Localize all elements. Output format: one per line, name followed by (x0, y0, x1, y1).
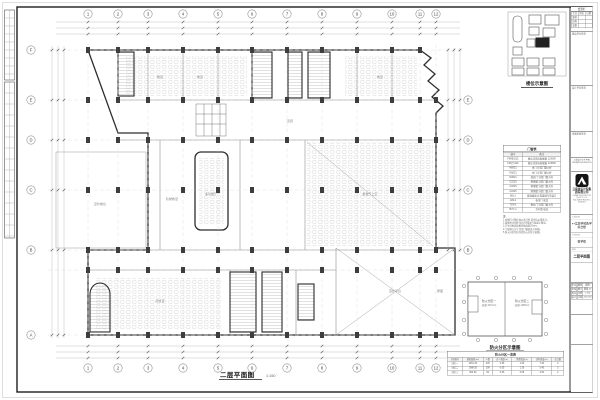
column (434, 187, 438, 193)
column (285, 47, 289, 53)
column (390, 47, 394, 53)
column (320, 247, 324, 253)
curved-stair (90, 283, 110, 332)
mini-axis-bubble (462, 332, 465, 335)
column (181, 332, 185, 338)
schedule-table: 编号备注 FM甲1021做法详见标准图集 12J609FM乙1221做法详见标准… (503, 152, 561, 213)
axis-bubble-label: C (29, 188, 32, 193)
column (390, 137, 394, 143)
column (181, 247, 185, 253)
axis-bubble-label: C (466, 188, 469, 193)
column (434, 267, 438, 273)
axis-bubble-label: 12 (434, 12, 439, 17)
axis-bubble-label: F (30, 48, 33, 53)
column (86, 137, 90, 143)
mini-axis-bubble (494, 338, 497, 341)
column (355, 267, 359, 273)
mini-axis-bubble (476, 338, 479, 341)
mini-axis-bubble (462, 284, 465, 287)
mini-axis-bubble (544, 284, 547, 287)
column (86, 332, 90, 338)
column (355, 187, 359, 193)
mini-axis-bubble (544, 318, 547, 321)
axis-bubble-label: D (466, 138, 469, 143)
mini-axis-bubble (528, 338, 531, 341)
empty-box-2 (571, 345, 593, 392)
column (116, 187, 120, 193)
column (434, 137, 438, 143)
column (216, 137, 220, 143)
column (355, 247, 359, 253)
column (86, 47, 90, 53)
mini-axis-bubble (528, 276, 531, 279)
column (146, 97, 150, 103)
fire-diagram-title: 防火分区示意图 (490, 344, 521, 351)
room-label: 教室 (377, 74, 383, 79)
schedule-title: 门窗表 (503, 145, 561, 152)
column (418, 137, 422, 143)
room-label: 室外看台 (94, 201, 106, 206)
column (250, 332, 254, 338)
project-name: ××实验学校教学综合楼 (571, 220, 593, 233)
mini-axis-bubble (462, 300, 465, 303)
column (116, 267, 120, 273)
axis-bubble-label: E (467, 98, 470, 103)
sign-off-table: 会签栏 专业姓名日期 建筑结构设备 (571, 7, 593, 32)
empty-box-1 (571, 315, 593, 345)
design-stamp-box: 设计单位签章 (571, 86, 593, 132)
column (116, 97, 120, 103)
column (390, 187, 394, 193)
room-label: 走廊 (287, 118, 293, 123)
column (285, 187, 289, 193)
owner-stamp-box: 建设单位签章 (571, 32, 593, 86)
mini-axis-bubble (476, 276, 479, 279)
column (146, 137, 150, 143)
column (320, 267, 324, 273)
axis-bubble-label: E (30, 98, 33, 103)
column (285, 247, 289, 253)
mini-axis-bubble (544, 300, 547, 303)
column (250, 97, 254, 103)
axis-bubble-label: A (30, 333, 33, 338)
column (181, 267, 185, 273)
column (146, 187, 150, 193)
revision-grid: 审定图别建施审核图号建施-05校对比例1:150设计日期2023.06 (571, 283, 593, 315)
column (86, 97, 90, 103)
column (285, 332, 289, 338)
review-stamp-box: 审图机构签章 (571, 132, 593, 158)
mini-axis-bubble (494, 276, 497, 279)
company-block: 云南省设计院集团有限公司 YUNNAN DESIGN INSTITUTE GRO… (571, 172, 593, 215)
column (86, 267, 90, 273)
fire-zone-2-label: 防火分区二 (515, 299, 529, 303)
column (86, 187, 90, 193)
mini-axis-bubble (512, 338, 515, 341)
classroom-desks-left (125, 56, 247, 96)
column (285, 267, 289, 273)
key-plan: 楼位示意图 (508, 12, 566, 88)
company-logo (575, 174, 588, 187)
column (355, 97, 359, 103)
hall-seats (199, 158, 224, 224)
column (434, 247, 438, 253)
general-notes: 注: 1.本图尺寸除标高以米计外,其余均以毫米计。2.墙体除注明外均为200厚加… (503, 215, 561, 234)
column (216, 247, 220, 253)
mini-axis-bubble (544, 332, 547, 335)
room-label: 教室 (197, 74, 203, 79)
project-fields: 工程名称 ××实验学校教学综合楼 子项名称 教学楼 图名 二层平面图 (571, 215, 593, 283)
table-row: 设计日期2023.06 (571, 295, 592, 299)
column (418, 332, 422, 338)
column (285, 137, 289, 143)
room-label: 屋面 (437, 288, 443, 293)
column (146, 47, 150, 53)
axis-bubble-label: 10 (390, 366, 395, 371)
room-label: 室外平台 (389, 288, 401, 293)
table-row: BYC-1百叶窗 成品 (503, 208, 561, 213)
column (250, 247, 254, 253)
fire-compartment-table: 防火分区一览表 分区编号建筑面积(m²)人数百人宽度(m)需要宽度(m)实际宽度… (447, 351, 564, 375)
drawing-sheet: 楼位示意图 防火分区一 (面积:2451m²) 防火分区二 (面积:1989m²… (0, 0, 600, 400)
column (181, 137, 185, 143)
mini-axis-bubble (512, 276, 515, 279)
column (250, 47, 254, 53)
column (116, 332, 120, 338)
column (146, 332, 150, 338)
company-name-en: YUNNAN DESIGN INSTITUTE GROUP CO.,LTD. (572, 195, 591, 199)
column (320, 137, 324, 143)
axis-bubble-label: 10 (390, 12, 395, 17)
reading-room-desks (96, 278, 222, 330)
column (146, 267, 150, 273)
column (116, 247, 120, 253)
column (116, 137, 120, 143)
key-plan-title: 楼位示意图 (526, 80, 549, 87)
title-block: 会签栏 专业姓名日期 建筑结构设备 建设单位签章 设计单位签章 审图机构签章 工… (571, 7, 593, 392)
column (216, 97, 220, 103)
column (434, 332, 438, 338)
column (181, 187, 185, 193)
room-label: 教室 (157, 74, 163, 79)
column (181, 97, 185, 103)
column (355, 332, 359, 338)
column (418, 97, 422, 103)
column (320, 187, 324, 193)
column (320, 47, 324, 53)
room-label: 报告厅上空 (362, 191, 377, 196)
column (390, 267, 394, 273)
column (250, 137, 254, 143)
column (216, 267, 220, 273)
mini-axis-bubble (462, 318, 465, 321)
column (116, 47, 120, 53)
column (250, 267, 254, 273)
column (216, 47, 220, 53)
column (250, 187, 254, 193)
column (434, 97, 438, 103)
fire-zone-1-label: 防火分区一 (482, 299, 496, 303)
column (181, 47, 185, 53)
axis-bubble-label: 11 (418, 366, 423, 371)
column (86, 247, 90, 253)
company-address: 地址:昆明市 电话:0871-63636363 (571, 198, 593, 203)
column (355, 47, 359, 53)
column (418, 47, 422, 53)
column (216, 332, 220, 338)
note-line: 5.防火分区划分详见防火分区示意图。 (503, 231, 561, 234)
plan-scale: 1:150 (266, 374, 276, 378)
table-row: 分区三902.60900.650.593.602 (447, 371, 564, 376)
certificate-lines: 工程设计证书 甲级 证书编号 A153001234 (571, 158, 593, 172)
subproject-name: 教学楼 (571, 237, 593, 247)
door-window-schedule: 门窗表 编号备注 FM甲1021做法详见标准图集 12J609FM乙1221做法… (503, 145, 561, 234)
axis-bubble-label: B (30, 248, 33, 253)
axis-bubble-label: D (29, 138, 32, 143)
column (320, 97, 324, 103)
column (418, 187, 422, 193)
column (390, 247, 394, 253)
company-name: 云南省设计院集团有限公司 (571, 189, 593, 195)
column (418, 267, 422, 273)
room-label: 阅览室 (155, 298, 164, 303)
column (146, 247, 150, 253)
axis-bubble-label: B (467, 248, 470, 253)
axis-bubble-label: 12 (434, 366, 439, 371)
room-label: 阶梯教室 (166, 196, 178, 201)
sheet-name: 二层平面图 (571, 252, 593, 263)
column (355, 137, 359, 143)
table-row: 设备 (571, 24, 592, 28)
column (390, 97, 394, 103)
column (285, 97, 289, 103)
axis-bubble-label: 11 (418, 12, 423, 17)
key-plan-highlight (536, 38, 549, 47)
room-label: 多功能厅 (205, 191, 217, 196)
column (320, 332, 324, 338)
column (390, 332, 394, 338)
column (418, 247, 422, 253)
